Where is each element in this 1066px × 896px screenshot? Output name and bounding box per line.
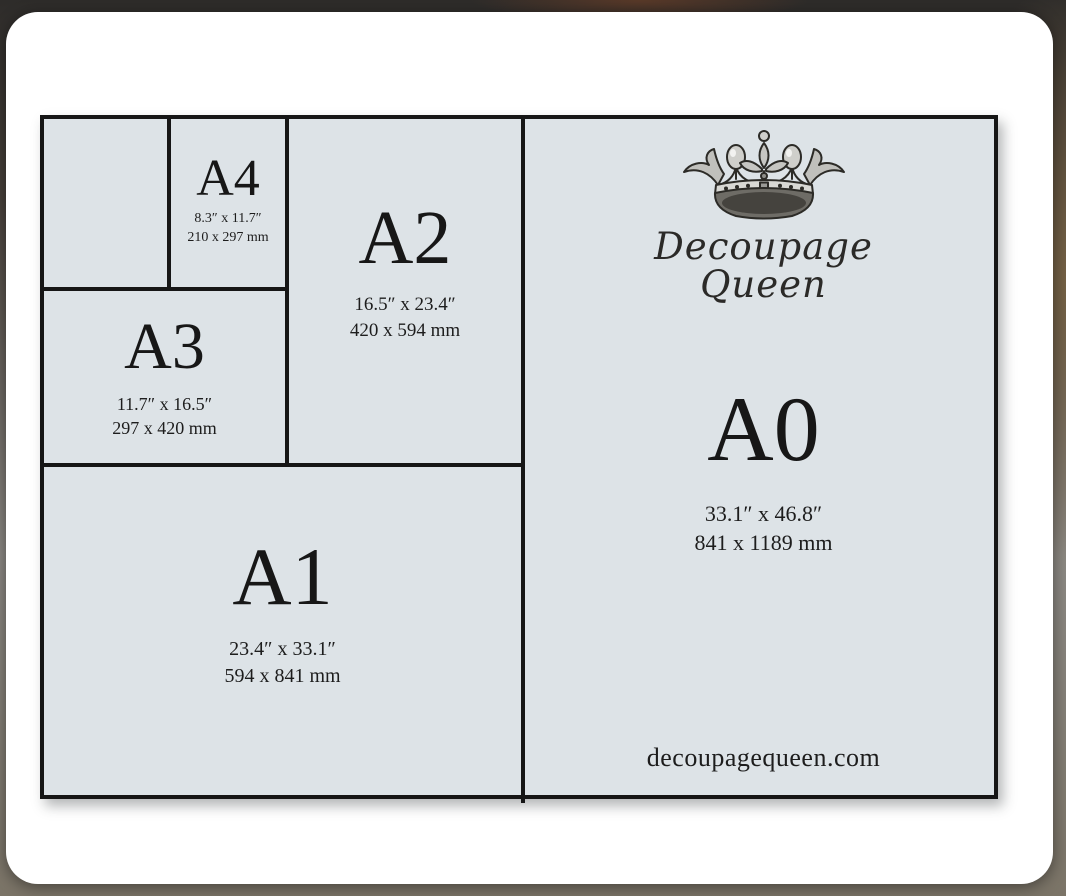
a0-label: A0 (525, 383, 1002, 475)
a4-label: A4 (196, 153, 260, 205)
brand-website: decoupagequeen.com (525, 743, 1002, 773)
a0-mm: 841 x 1189 mm (525, 528, 1002, 557)
a2-dimensions: 16.5″ x 23.4″ 420 x 594 mm (350, 292, 460, 343)
a1-label: A1 (232, 536, 332, 618)
cell-a1: A1 23.4″ x 33.1″ 594 x 841 mm (44, 467, 521, 803)
cell-blank (44, 119, 167, 287)
a1-dimensions: 23.4″ x 33.1″ 594 x 841 mm (224, 636, 340, 690)
a0-dimensions: 33.1″ x 46.8″ 841 x 1189 mm (525, 499, 1002, 557)
a3-mm: 297 x 420 mm (112, 416, 217, 440)
a4-inches: 8.3″ x 11.7″ (187, 210, 268, 229)
brand-logo: Decoupage Queen (525, 129, 1002, 303)
product-image-card: A4 8.3″ x 11.7″ 210 x 297 mm A3 11.7″ x … (6, 12, 1053, 884)
a2-label: A2 (359, 200, 452, 276)
brand-name-line1: Decoupage (525, 228, 1002, 266)
cell-a2: A2 16.5″ x 23.4″ 420 x 594 mm (289, 119, 521, 463)
a2-inches: 16.5″ x 23.4″ (350, 292, 460, 318)
cell-a3: A3 11.7″ x 16.5″ 297 x 420 mm (44, 291, 285, 463)
a1-inches: 23.4″ x 33.1″ (224, 636, 340, 663)
page-background: { "card": { "background": "#ffffff" }, "… (0, 0, 1066, 896)
paper-size-diagram: A4 8.3″ x 11.7″ 210 x 297 mm A3 11.7″ x … (40, 115, 998, 799)
a3-label: A3 (124, 314, 205, 380)
a4-dimensions: 8.3″ x 11.7″ 210 x 297 mm (187, 210, 268, 248)
cell-a4: A4 8.3″ x 11.7″ 210 x 297 mm (171, 119, 285, 287)
crown-icon (676, 129, 852, 223)
a0-inches: 33.1″ x 46.8″ (525, 499, 1002, 528)
a2-mm: 420 x 594 mm (350, 318, 460, 344)
a4-mm: 210 x 297 mm (187, 229, 268, 248)
a3-dimensions: 11.7″ x 16.5″ 297 x 420 mm (112, 392, 217, 441)
a3-inches: 11.7″ x 16.5″ (112, 392, 217, 416)
a1-mm: 594 x 841 mm (224, 663, 340, 690)
cell-a0: Decoupage Queen A0 33.1″ x 46.8″ 841 x 1… (525, 119, 1002, 803)
brand-name-line2: Queen (525, 266, 1002, 304)
